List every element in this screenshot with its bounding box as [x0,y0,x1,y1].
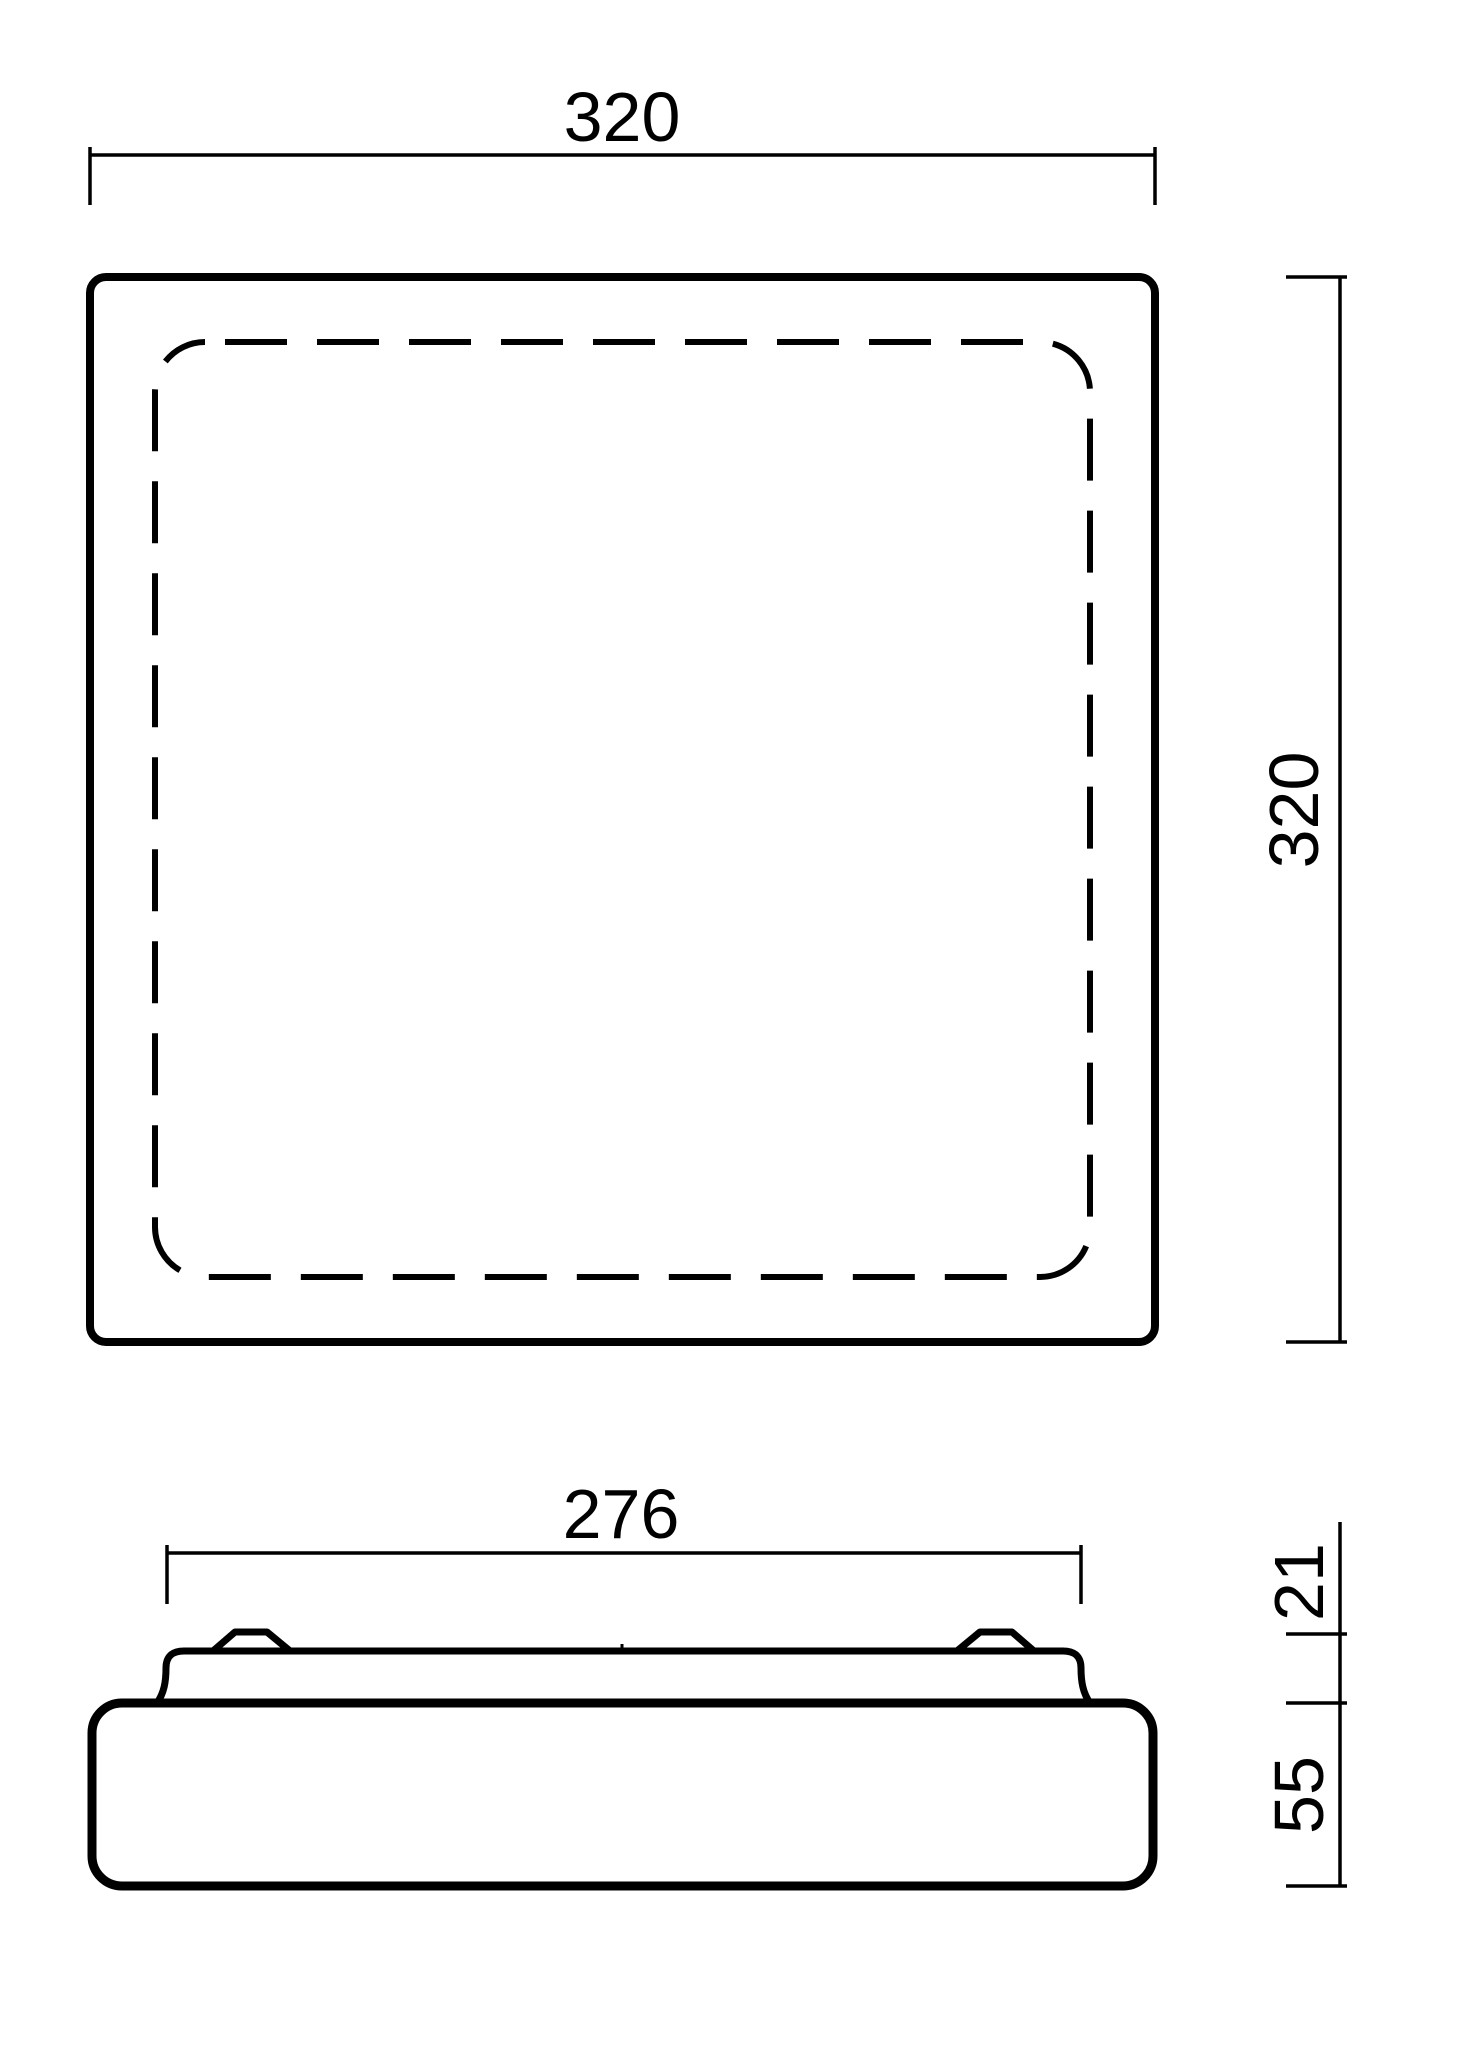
side-width-value: 276 [563,1475,680,1553]
side-width-dimension: 276 [167,1475,1081,1604]
technical-drawing-page: 320 320 276 [0,0,1458,2063]
top-width-value: 320 [564,78,681,156]
side-view-upper-body [157,1651,1090,1703]
side-top-height-value: 21 [1260,1543,1338,1621]
top-height-dimension: 320 [1255,277,1347,1342]
top-height-value: 320 [1255,752,1333,869]
side-view-base [92,1703,1153,1886]
top-width-dimension: 320 [90,78,1155,205]
side-base-height-value: 55 [1260,1756,1338,1834]
top-view [90,277,1155,1342]
top-view-outer-square [90,277,1155,1342]
side-view [92,1632,1153,1886]
side-height-dimensions: 21 55 [1260,1522,1347,1886]
luminaire-dimension-drawing: 320 320 276 [0,0,1458,2063]
top-view-inner-dashed-square [155,342,1090,1277]
